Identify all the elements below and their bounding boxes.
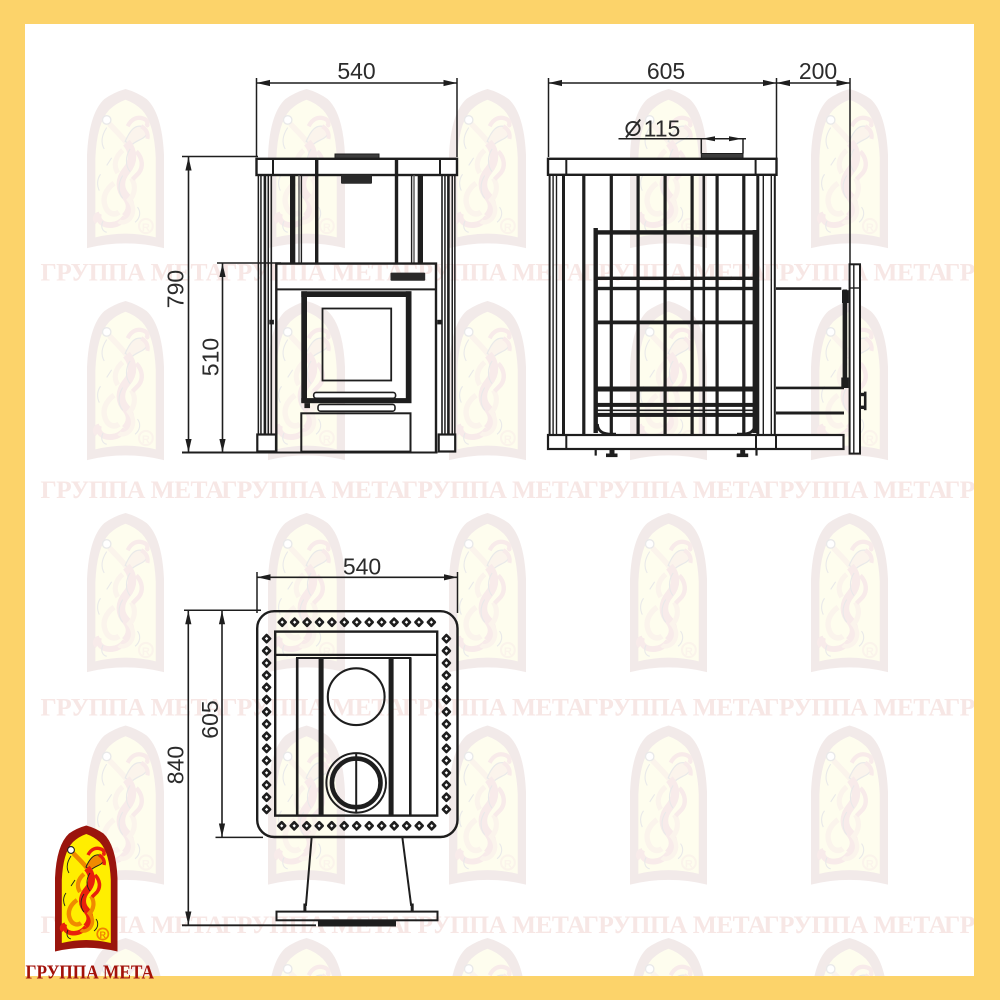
svg-text:605: 605 (647, 58, 685, 84)
svg-text:ГРУППА МЕТА: ГРУППА МЕТА (583, 910, 767, 939)
svg-text:ГРУППА МЕТА: ГРУППА МЕТА (41, 475, 225, 504)
svg-text:ГРУППА МЕТА: ГРУППА МЕТА (221, 475, 405, 504)
svg-text:ГРУППА МЕТА: ГРУППА МЕТА (41, 258, 225, 287)
svg-text:ГРУППА МЕТА: ГРУППА МЕТА (221, 693, 405, 722)
svg-text:ГРУППА МЕТА: ГРУППА МЕТА (402, 910, 586, 939)
svg-text:540: 540 (337, 58, 375, 84)
svg-text:ГРУППА МЕТА: ГРУППА МЕТА (221, 258, 405, 287)
svg-text:540: 540 (343, 554, 381, 580)
svg-text:ГРУППА МЕТА: ГРУППА МЕТА (402, 475, 586, 504)
svg-text:ГРУППА МЕТА: ГРУППА МЕТА (583, 693, 767, 722)
svg-text:ГРУППА МЕТА: ГРУППА МЕТА (26, 963, 155, 984)
svg-text:ГРУППА МЕТА: ГРУППА МЕТА (402, 693, 586, 722)
svg-text:790: 790 (163, 270, 189, 308)
svg-text:840: 840 (163, 746, 189, 784)
svg-text:200: 200 (799, 58, 837, 84)
svg-text:ГРУППА МЕТА: ГРУППА МЕТА (763, 910, 947, 939)
svg-text:510: 510 (198, 338, 224, 376)
svg-text:ГРУППА МЕТА: ГРУППА МЕТА (402, 258, 586, 287)
svg-text:ГРУППА МЕТА: ГРУППА МЕТА (583, 475, 767, 504)
svg-text:ГРУППА МЕТА: ГРУППА МЕТА (763, 475, 947, 504)
svg-text:115: 115 (644, 116, 681, 142)
svg-text:605: 605 (197, 700, 223, 738)
svg-text:ГРУППА МЕТА: ГРУППА МЕТА (763, 693, 947, 722)
